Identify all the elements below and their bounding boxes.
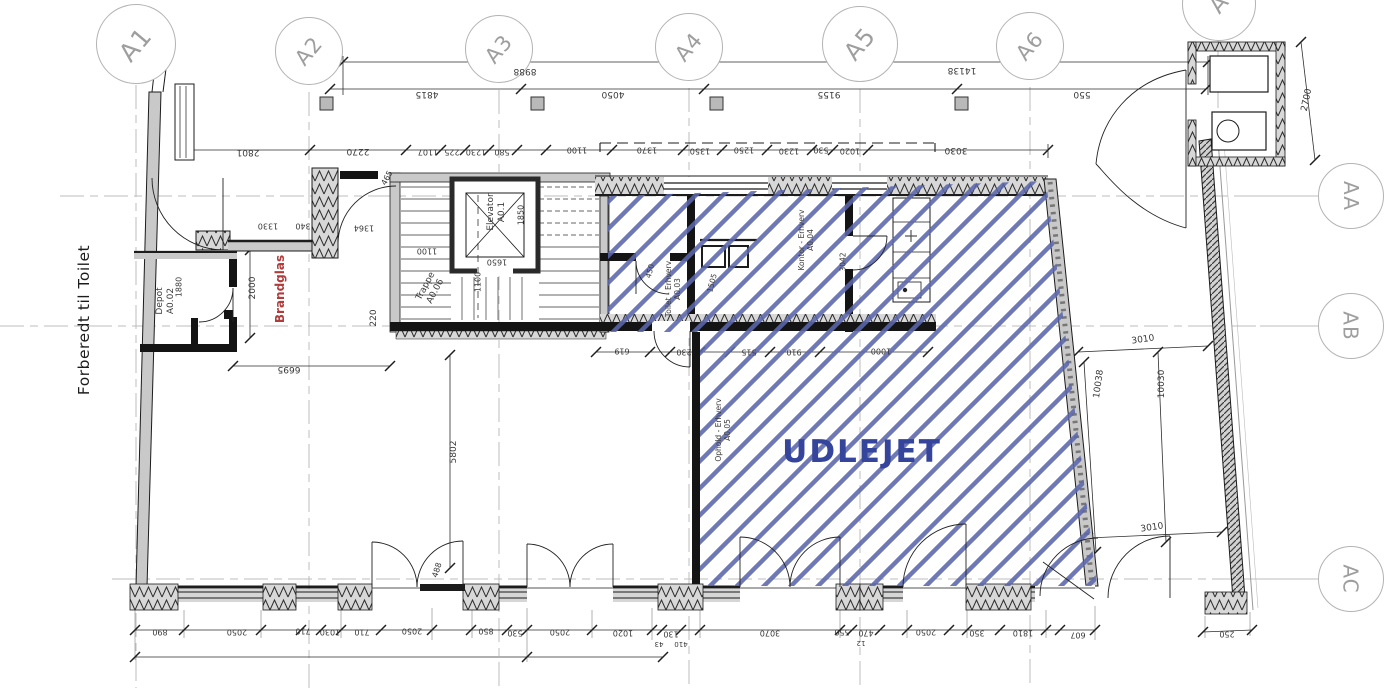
dimension-extension-lines <box>135 606 1250 662</box>
bottom-wall <box>130 584 1095 610</box>
note-forberedt-til-toilet: Forberedt til Toilet <box>75 245 93 395</box>
note-brandglas: Brandglas <box>273 255 287 323</box>
neighbour-wall <box>1188 42 1285 614</box>
walls <box>134 30 610 587</box>
plan-linework <box>0 0 1400 690</box>
column-markers <box>320 97 968 110</box>
udlejet-hatch-area <box>608 181 1097 586</box>
dashed-overhang-line <box>600 143 935 152</box>
grid-leader-stubs <box>1230 196 1318 579</box>
label-udlejet: UDLEJET <box>782 434 942 470</box>
floor-plan: A1A2A3A4A5A6AAABACA 89881413848154050915… <box>0 0 1400 690</box>
